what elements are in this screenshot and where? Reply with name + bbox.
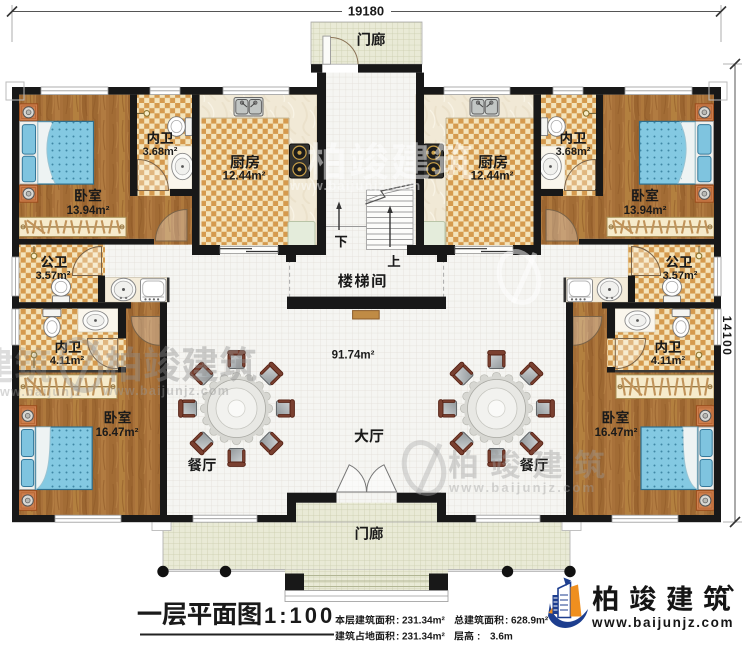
svg-text:91.74m²: 91.74m²	[332, 350, 375, 362]
svg-text:1:100: 1:100	[264, 603, 335, 628]
svg-text:628.9m²: 628.9m²	[511, 616, 549, 627]
svg-text:13.94m²: 13.94m²	[67, 205, 110, 217]
svg-text::: :	[396, 632, 399, 643]
svg-text:14100: 14100	[720, 316, 734, 357]
svg-text:www.baijunjz.com: www.baijunjz.com	[448, 480, 596, 495]
svg-text:3.68m²: 3.68m²	[556, 146, 591, 158]
svg-text::: :	[396, 616, 399, 627]
svg-text:231.34m²: 231.34m²	[402, 616, 445, 627]
svg-text:19180: 19180	[348, 4, 384, 19]
svg-text:3.6m: 3.6m	[490, 632, 513, 643]
svg-text:www.baijunjz.com: www.baijunjz.com	[591, 615, 734, 630]
svg-text:3.57m²: 3.57m²	[36, 270, 71, 282]
svg-text:4.11m²: 4.11m²	[50, 355, 85, 367]
svg-text:3.68m²: 3.68m²	[143, 146, 178, 158]
svg-text:12.44m²: 12.44m²	[223, 171, 266, 183]
svg-text:16.47m²: 16.47m²	[96, 427, 139, 439]
svg-text:ww.baijunjz: ww.baijunjz	[0, 385, 82, 399]
svg-text::: :	[477, 632, 480, 643]
svg-text:www.baijunjz.com: www.baijunjz.com	[102, 384, 230, 398]
svg-text::: :	[505, 616, 508, 627]
svg-text:4.11m²: 4.11m²	[651, 355, 686, 367]
svg-text:231.34m²: 231.34m²	[402, 632, 445, 643]
svg-text:3.57m²: 3.57m²	[663, 270, 698, 282]
svg-text:16.47m²: 16.47m²	[595, 427, 638, 439]
svg-text:www.baijunjz.com: www.baijunjz.com	[289, 178, 421, 193]
svg-text:13.94m²: 13.94m²	[624, 205, 667, 217]
svg-text:12.44m²: 12.44m²	[471, 171, 514, 183]
